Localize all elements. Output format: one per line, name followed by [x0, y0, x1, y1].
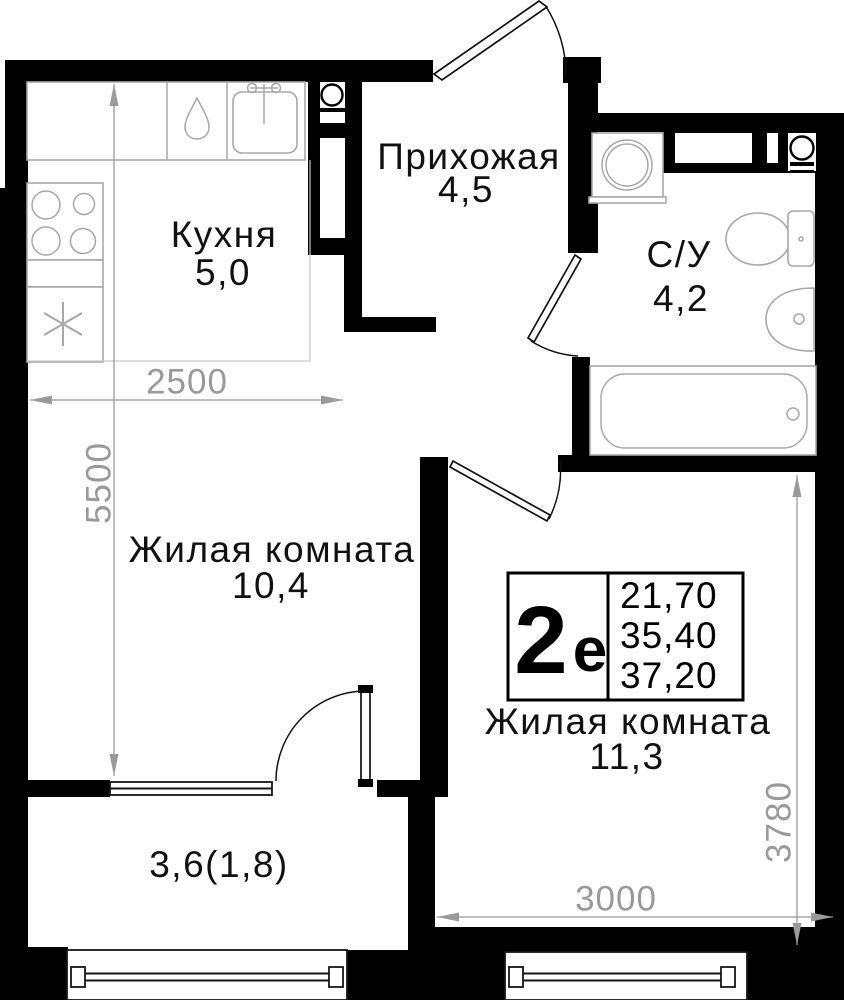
living1-area: 10,4 — [232, 565, 310, 606]
wall — [747, 950, 844, 1000]
bathtub — [590, 366, 816, 455]
dim-room2-width: 3000 — [575, 880, 657, 919]
toilet-tank — [788, 211, 814, 266]
balcony-door-leaf — [361, 689, 370, 783]
dim-arrow — [321, 396, 343, 405]
unit-area-main: 35,40 — [620, 615, 718, 656]
unit-type-letter: е — [573, 616, 607, 685]
unit-area-total: 37,20 — [620, 655, 718, 696]
living1-label: Жилая комната — [129, 529, 416, 570]
floor-plan-svg: 2500 5500 3000 3780 Кухня 5,0 Прихожая 4… — [0, 0, 844, 1000]
wall — [5, 60, 433, 82]
glazing-cap — [329, 967, 343, 987]
glazing-cap — [71, 967, 85, 987]
entrance-door-arc — [545, 5, 566, 77]
toilet-bowl — [726, 213, 790, 265]
bath-niche — [767, 133, 778, 163]
shaft-niche — [320, 138, 345, 238]
dim-arrow — [437, 913, 459, 922]
balcony-area: 3,6(1,8) — [149, 844, 289, 885]
bath-niche — [675, 133, 752, 163]
dim-kitchen-width: 2500 — [146, 363, 228, 402]
wall — [0, 188, 28, 950]
dim-arrow — [30, 396, 52, 405]
dim-arrow — [110, 754, 119, 776]
glazing-cap — [509, 967, 523, 987]
room2-window — [505, 952, 747, 1000]
unit-type-number: 2 — [514, 587, 567, 694]
kitchen-label: Кухня — [171, 214, 278, 255]
floor-plan: 2500 5500 3000 3780 Кухня 5,0 Прихожая 4… — [0, 0, 844, 1000]
wall — [420, 927, 844, 952]
vent-grille — [790, 162, 814, 166]
kitchen-sink — [233, 92, 297, 153]
balcony-window — [67, 950, 347, 1000]
bathroom-area: 4,2 — [653, 278, 709, 319]
stove — [27, 183, 103, 260]
vent-icon — [791, 137, 814, 160]
wall — [0, 947, 68, 1000]
balcony-door-arc — [276, 691, 366, 781]
wall — [572, 357, 590, 456]
wall — [344, 317, 436, 332]
washing-machine-tray — [589, 197, 666, 203]
glazing-cap — [721, 967, 735, 987]
wall — [558, 455, 844, 472]
bath-sink — [766, 288, 814, 351]
shaft-niche — [320, 112, 345, 123]
wall — [815, 113, 844, 953]
walls — [0, 57, 844, 1000]
hallway-area: 4,5 — [438, 169, 494, 210]
dim-room2-height: 3780 — [760, 781, 799, 863]
room2-door-leaf — [450, 461, 550, 521]
room-labels: Кухня 5,0 Прихожая 4,5 С/У 4,2 Жилая ком… — [129, 136, 772, 885]
unit-info-box: 2 е 21,70 35,40 37,20 — [508, 573, 743, 700]
vent-grille — [790, 170, 814, 172]
kitchen-area: 5,0 — [195, 252, 251, 293]
living2-area: 11,3 — [589, 736, 664, 777]
unit-area-living: 21,70 — [620, 575, 718, 616]
wall — [590, 113, 841, 132]
vent-icon — [322, 85, 343, 106]
entrance-door-leaf — [434, 1, 547, 80]
wall — [28, 780, 110, 797]
wall — [5, 60, 28, 190]
bathroom-door-arc — [531, 341, 578, 356]
kitchen-cabinet — [27, 260, 103, 287]
balcony-door-cap — [358, 779, 373, 787]
bathroom-door-leaf — [528, 255, 581, 342]
bathroom-label: С/У — [646, 234, 711, 275]
wall — [420, 457, 448, 797]
dim-arrow — [793, 475, 802, 497]
wall — [347, 950, 505, 1000]
dim-left-height: 5500 — [80, 442, 119, 524]
wall — [377, 780, 448, 797]
